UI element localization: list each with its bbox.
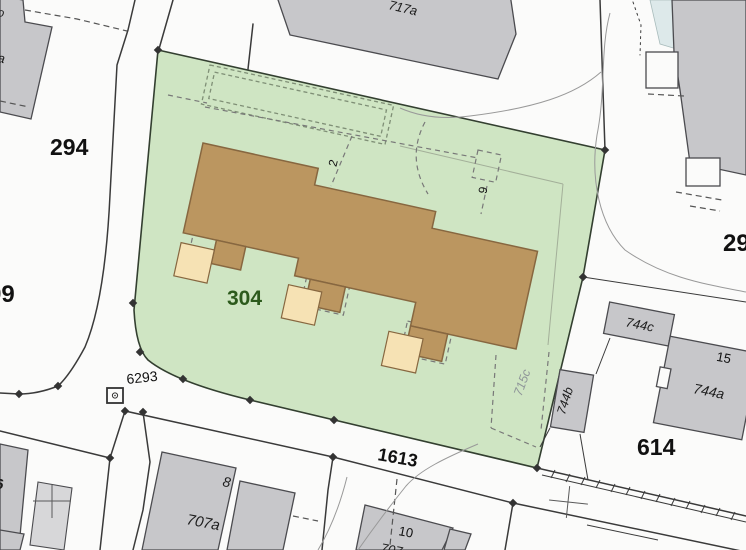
parcel-label-99-clipped: 99	[0, 281, 15, 308]
parcel-label-614: 614	[637, 434, 676, 460]
building-top-right-annex-south	[686, 158, 720, 186]
boundary-dotted-top-right	[633, 2, 641, 55]
building-top-right	[672, 0, 746, 175]
building-bottom-left	[0, 444, 28, 536]
building-top-left	[0, 0, 52, 119]
street-label-1613: 1613	[376, 444, 419, 471]
annex-dashed-3	[690, 206, 720, 211]
porch-1	[174, 243, 215, 284]
building-bottom-left-annex	[30, 482, 72, 550]
building-corner-piece	[0, 530, 24, 550]
annex-dashed-1	[648, 94, 684, 96]
building-top-right-annex-west	[646, 52, 678, 88]
parcel-label-304: 304	[227, 287, 262, 310]
boundary-marker-symbol	[107, 388, 123, 403]
map-canvas: 294 304 614 99 29 1613 6293 717a 707a 8 …	[0, 0, 746, 550]
boundary-dashed-707a	[293, 516, 318, 521]
parcel-label-294: 294	[50, 134, 89, 160]
boundary-segment-terrace	[248, 24, 253, 69]
house-label-10: 10	[397, 523, 414, 540]
annex-dashed-2	[676, 192, 722, 200]
street-label-6293: 6293	[126, 368, 159, 387]
parcel-label-29-clipped: 29	[723, 230, 746, 257]
building-707a	[142, 452, 236, 550]
cadastral-map: 294 304 614 99 29 1613 6293 717a 707a 8 …	[0, 0, 746, 550]
building-707a-annex-8	[227, 481, 295, 550]
porch-2	[281, 285, 322, 326]
house-label-15: 15	[715, 349, 732, 366]
porch-3	[381, 331, 423, 373]
